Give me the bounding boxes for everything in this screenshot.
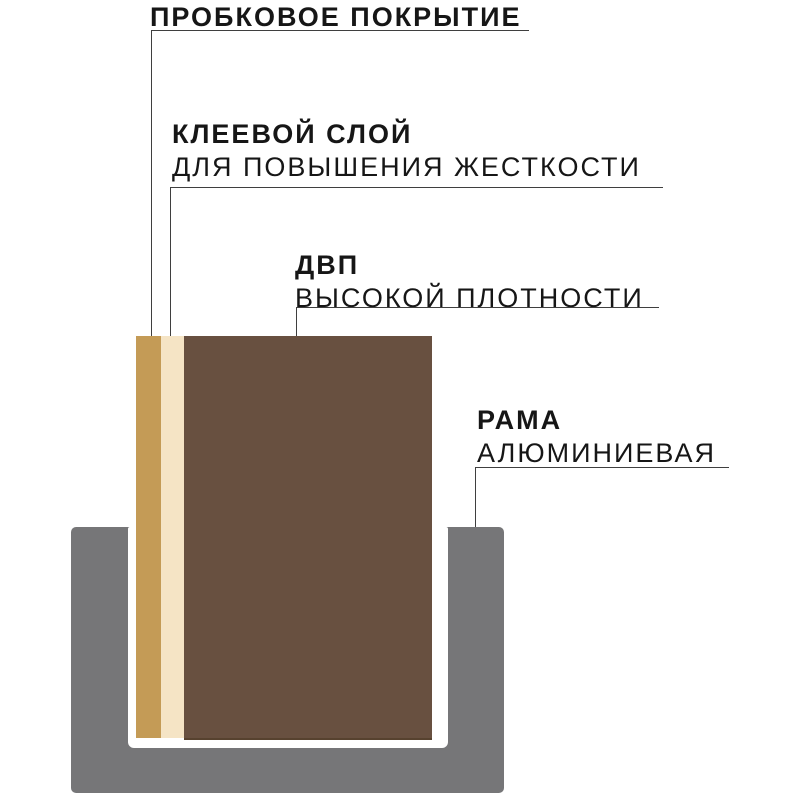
glue-layer bbox=[161, 336, 184, 738]
label-aluminum-frame: РАМА АЛЮМИНИЕВАЯ bbox=[477, 404, 716, 470]
diagram-canvas: ПРОБКОВОЕ ПОКРЫТИЕ КЛЕЕВОЙ СЛОЙ ДЛЯ ПОВЫ… bbox=[0, 0, 800, 800]
glue-label-title: КЛЕЕВОЙ СЛОЙ bbox=[172, 118, 641, 151]
cork-layer bbox=[136, 336, 162, 738]
hdf-label-title: ДВП bbox=[295, 249, 644, 282]
label-hdf-board: ДВП ВЫСОКОЙ ПЛОТНОСТИ bbox=[295, 249, 644, 315]
frame-label-subtitle: АЛЮМИНИЕВАЯ bbox=[477, 437, 716, 470]
hdf-leader-line bbox=[296, 307, 659, 337]
label-glue-layer: КЛЕЕВОЙ СЛОЙ ДЛЯ ПОВЫШЕНИЯ ЖЕСТКОСТИ bbox=[172, 118, 641, 184]
frame-label-title: РАМА bbox=[477, 404, 716, 437]
hdf-layer bbox=[184, 336, 432, 740]
frame-leader-line bbox=[475, 467, 729, 528]
glue-label-subtitle: ДЛЯ ПОВЫШЕНИЯ ЖЕСТКОСТИ bbox=[172, 151, 641, 184]
